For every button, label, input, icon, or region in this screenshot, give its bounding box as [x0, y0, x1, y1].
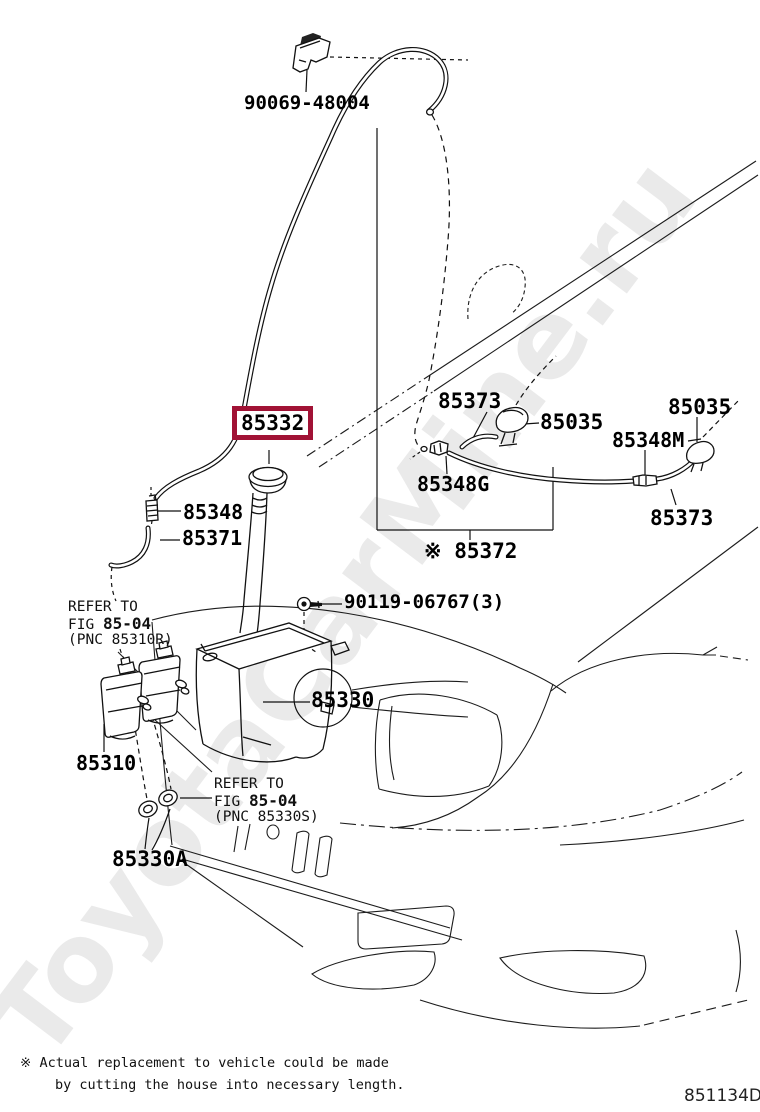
part-label-85348[interactable]: 85348 [183, 502, 243, 523]
part-label-85332: 85332 [241, 411, 304, 435]
parts-drawings [101, 33, 714, 820]
refer-note-line: (PNC 85310R) [68, 633, 173, 649]
nozzle-right-drawing [687, 442, 714, 472]
refer-note-line: FIG 85-04 [214, 793, 319, 811]
washer-pump-drawing [101, 641, 190, 739]
footnote-line-2: by cutting the house into necessary leng… [55, 1077, 405, 1093]
part-label-90119-06767[interactable]: 90119-06767(3) [344, 593, 504, 613]
part-label-85310[interactable]: 85310 [76, 753, 136, 774]
filler-neck-drawing [240, 493, 267, 634]
washer-hoses-drawing [111, 49, 695, 566]
part-label-85348M[interactable]: 85348M [612, 430, 684, 451]
part-label-85373-right[interactable]: 85373 [650, 507, 713, 529]
part-label-85035-left[interactable]: 85035 [540, 411, 603, 433]
part-label-85035-right[interactable]: 85035 [668, 396, 731, 418]
refer-note-grommet: REFER TO FIG 85-04 (PNC 85330S) [214, 777, 319, 826]
diagram-line-art [0, 0, 760, 1112]
grommet-drawing [156, 787, 180, 809]
leader-lines [104, 57, 738, 850]
grommet-drawing [136, 798, 160, 820]
hose-joint-m-drawing [633, 475, 657, 486]
part-label-85371[interactable]: 85371 [182, 528, 242, 549]
part-label-85330[interactable]: 85330 [311, 689, 374, 711]
inlet-cap-drawing [249, 468, 287, 494]
part-label-85373-left[interactable]: 85373 [438, 390, 501, 412]
refer-note-line: FIG 85-04 [68, 616, 173, 634]
part-label-85348G[interactable]: 85348G [417, 474, 489, 495]
doc-code: 851134D [684, 1086, 760, 1106]
refer-note-line: (PNC 85330S) [214, 810, 319, 826]
part-label-90069-48004[interactable]: 90069-48004 [244, 94, 370, 114]
footnote-line-1: ※ Actual replacement to vehicle could be… [20, 1055, 389, 1071]
hose-joint-g-drawing [421, 441, 448, 455]
refer-note-pump: REFER TO FIG 85-04 (PNC 85310R) [68, 600, 173, 649]
tank-joint-drawing [146, 495, 158, 521]
part-label-85372[interactable]: ※ 85372 [424, 540, 517, 562]
hose-clip-drawing [293, 33, 330, 72]
nozzle-left-drawing [496, 408, 528, 446]
selected-part-box[interactable]: 85332 [232, 406, 313, 440]
parts-diagram-page: ToyotaCarMine.ru [0, 0, 760, 1112]
part-label-85330A[interactable]: 85330A [112, 848, 188, 870]
